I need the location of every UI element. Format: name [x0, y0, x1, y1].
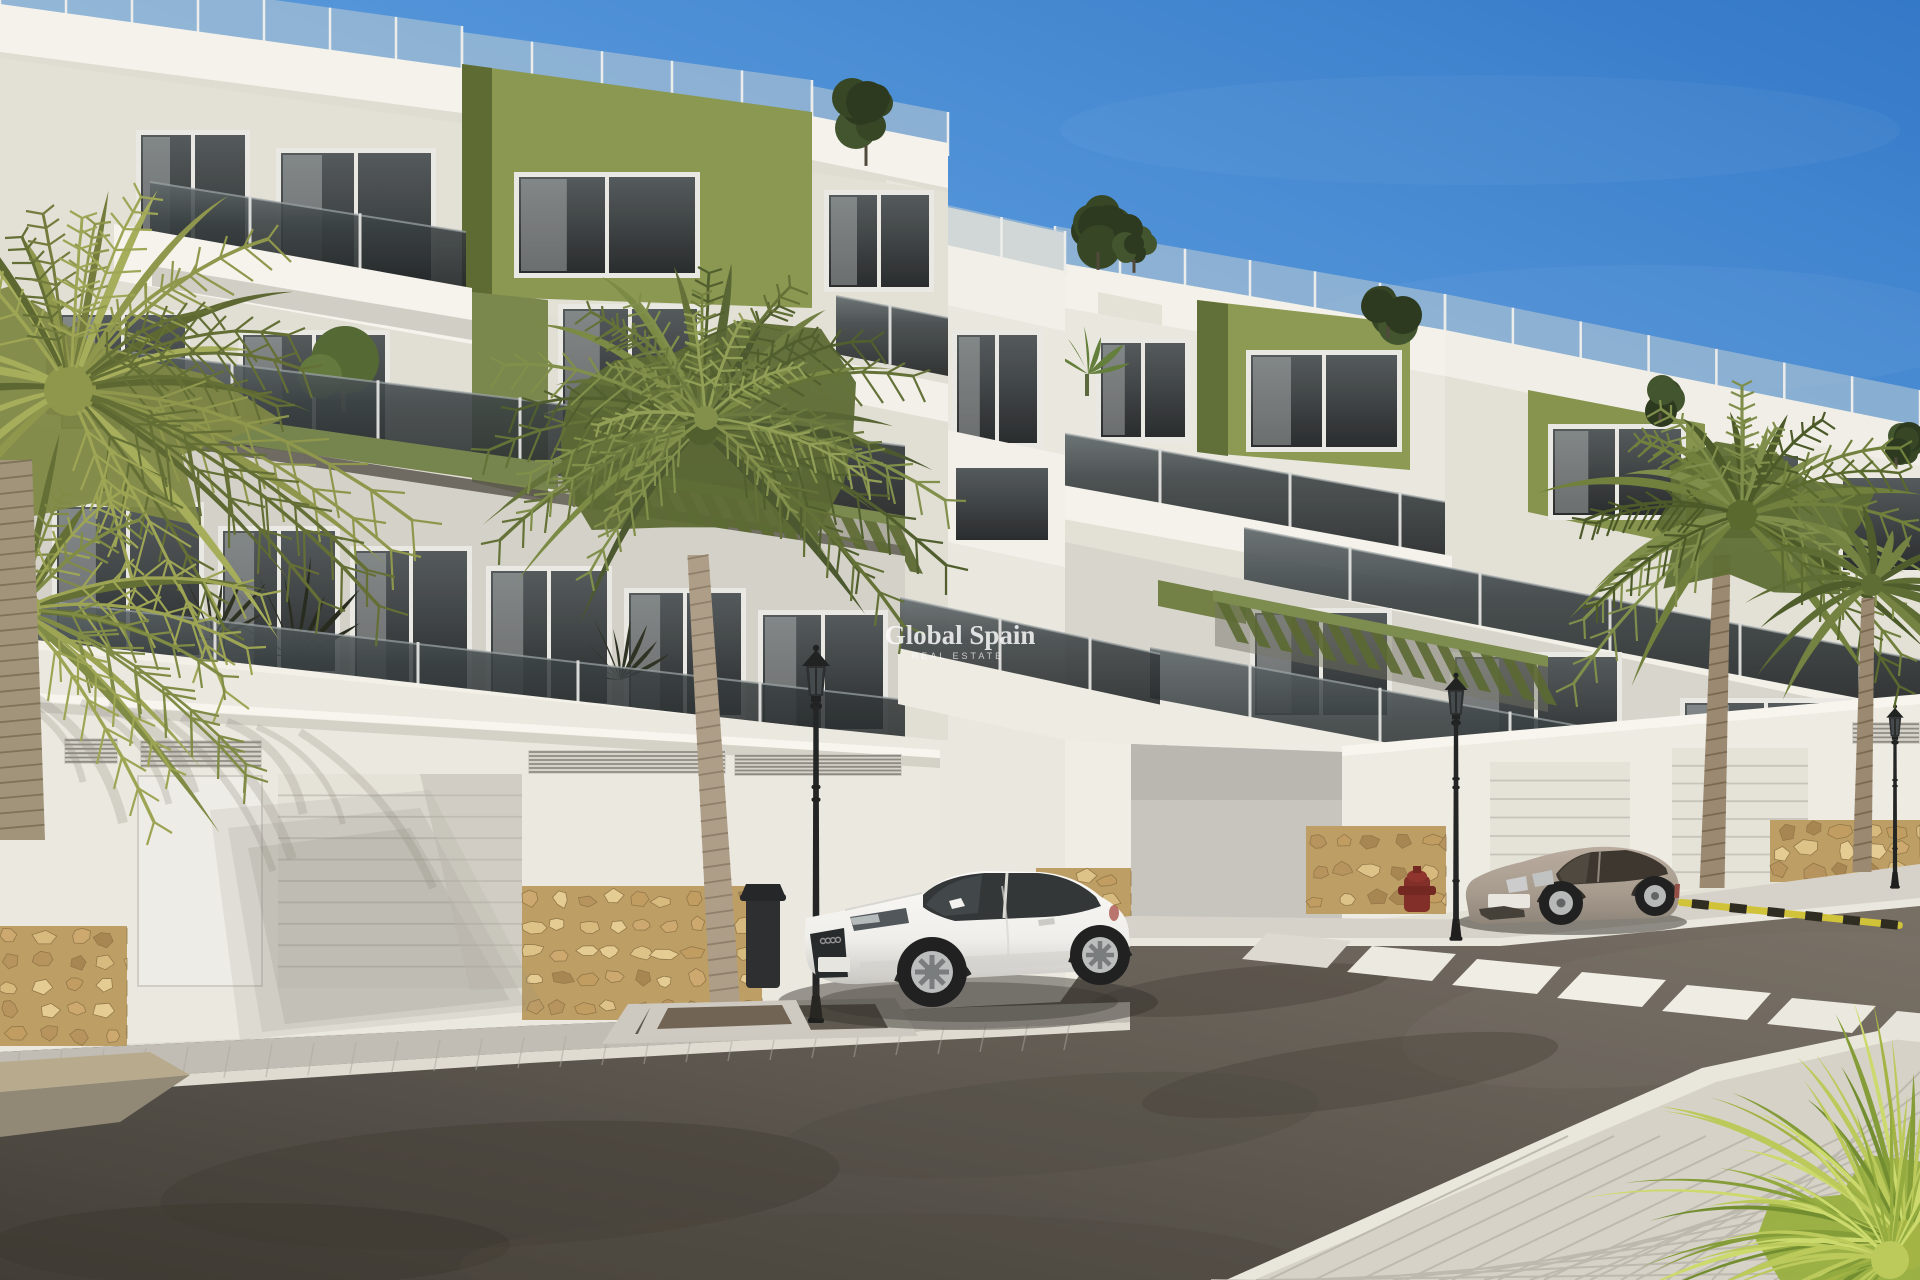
svg-text:REAL ESTATE: REAL ESTATE: [912, 651, 1004, 661]
svg-text:Global Spain: Global Spain: [885, 620, 1036, 650]
